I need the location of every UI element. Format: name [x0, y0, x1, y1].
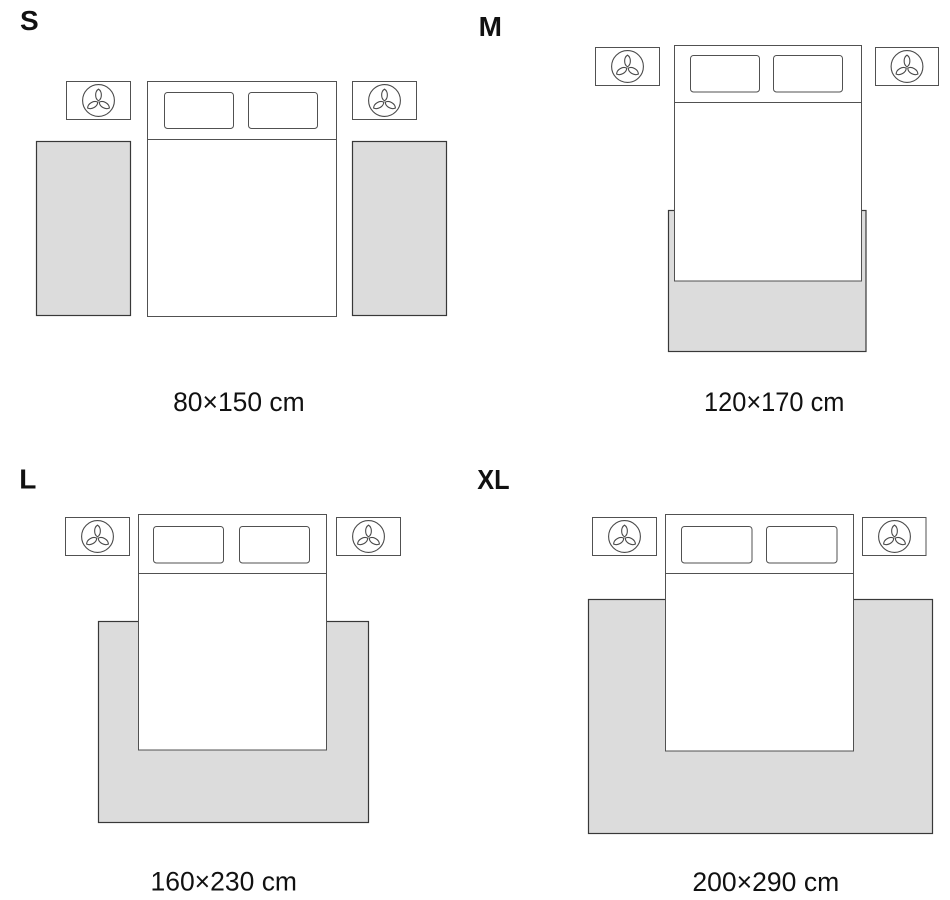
svg-text:M: M: [479, 11, 502, 42]
svg-text:160×230 cm: 160×230 cm: [151, 866, 298, 896]
svg-text:S: S: [20, 5, 39, 36]
svg-text:L: L: [19, 464, 36, 495]
svg-text:80×150 cm: 80×150 cm: [173, 387, 305, 417]
svg-text:120×170 cm: 120×170 cm: [704, 387, 844, 417]
svg-text:XL: XL: [477, 464, 509, 495]
svg-text:200×290 cm: 200×290 cm: [692, 867, 839, 897]
